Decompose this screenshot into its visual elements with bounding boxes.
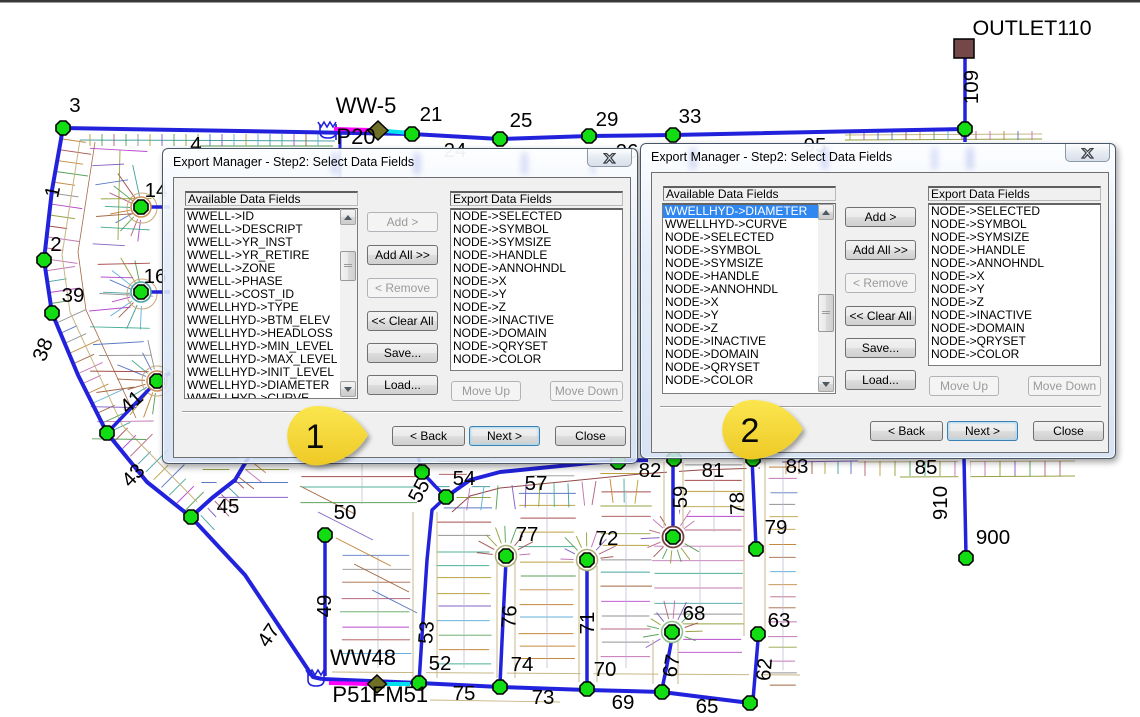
svg-text:79: 79 — [765, 516, 788, 539]
svg-text:109: 109 — [960, 70, 983, 104]
svg-text:72: 72 — [596, 527, 619, 550]
svg-text:53: 53 — [414, 620, 439, 645]
svg-text:57: 57 — [525, 472, 548, 495]
svg-text:38: 38 — [28, 335, 58, 365]
svg-text:77: 77 — [516, 523, 539, 546]
svg-text:52: 52 — [429, 652, 452, 675]
svg-text:FM51: FM51 — [372, 682, 428, 707]
svg-text:75: 75 — [453, 682, 476, 705]
svg-text:29: 29 — [596, 108, 619, 131]
svg-text:2: 2 — [50, 233, 61, 256]
svg-text:OUTLET110: OUTLET110 — [972, 16, 1091, 40]
svg-text:54: 54 — [453, 467, 476, 490]
svg-text:3: 3 — [69, 94, 80, 117]
svg-text:25: 25 — [510, 109, 533, 132]
svg-text:76: 76 — [497, 605, 521, 629]
svg-text:74: 74 — [511, 653, 534, 676]
svg-text:45: 45 — [217, 495, 240, 518]
svg-text:2: 2 — [741, 412, 760, 450]
svg-text:39: 39 — [62, 284, 85, 307]
svg-text:49: 49 — [313, 595, 336, 618]
svg-text:62: 62 — [752, 657, 777, 682]
svg-text:82: 82 — [639, 459, 662, 482]
svg-text:WW48: WW48 — [330, 645, 396, 670]
svg-text:71: 71 — [576, 612, 599, 635]
svg-text:33: 33 — [679, 105, 702, 128]
svg-text:69: 69 — [612, 691, 635, 714]
svg-text:73: 73 — [532, 686, 555, 709]
svg-text:P20: P20 — [336, 124, 375, 149]
svg-text:P51: P51 — [332, 682, 371, 707]
svg-text:78: 78 — [725, 491, 749, 515]
svg-text:910: 910 — [929, 486, 952, 520]
svg-text:67: 67 — [658, 653, 685, 679]
svg-text:WW-5: WW-5 — [336, 93, 397, 118]
svg-text:1: 1 — [40, 184, 65, 200]
svg-text:85: 85 — [915, 456, 938, 479]
svg-text:900: 900 — [976, 526, 1010, 549]
svg-text:70: 70 — [594, 658, 617, 681]
svg-text:65: 65 — [696, 695, 719, 717]
svg-text:1: 1 — [306, 418, 325, 456]
svg-text:43: 43 — [117, 459, 149, 491]
svg-text:68: 68 — [683, 602, 706, 625]
svg-text:21: 21 — [420, 103, 443, 126]
svg-text:63: 63 — [768, 609, 791, 632]
svg-text:50: 50 — [334, 501, 357, 524]
svg-text:59: 59 — [669, 486, 692, 509]
